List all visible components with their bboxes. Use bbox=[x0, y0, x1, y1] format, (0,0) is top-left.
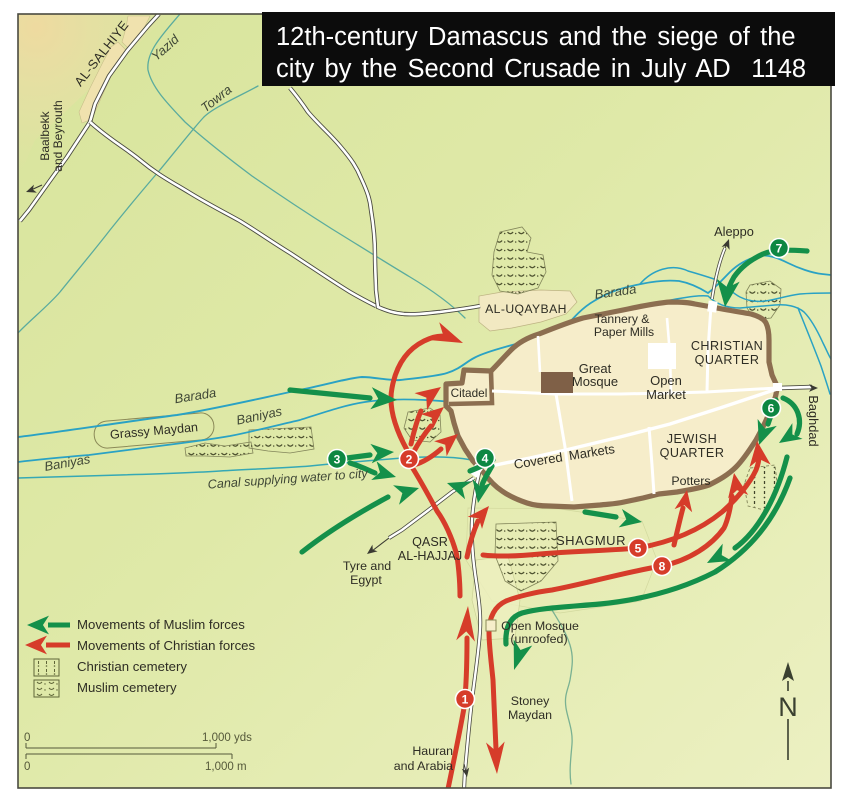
svg-text:SHAGMUR: SHAGMUR bbox=[556, 533, 626, 548]
svg-text:QUARTER: QUARTER bbox=[695, 353, 760, 367]
svg-text:0: 0 bbox=[24, 732, 30, 744]
svg-text:Stoney: Stoney bbox=[511, 694, 550, 708]
svg-text:12th-century Damascus and the: 12th-century Damascus and the siege of t… bbox=[276, 23, 796, 51]
svg-text:Hauran: Hauran bbox=[412, 744, 453, 758]
svg-text:QUARTER: QUARTER bbox=[660, 446, 725, 460]
svg-text:CHRISTIAN: CHRISTIAN bbox=[691, 339, 763, 353]
svg-text:and Arabia: and Arabia bbox=[394, 759, 453, 773]
svg-text:N: N bbox=[778, 692, 798, 722]
svg-text:7: 7 bbox=[776, 242, 783, 256]
svg-text:AL-HAJJAJ: AL-HAJJAJ bbox=[398, 549, 462, 563]
svg-text:and Beyrouth: and Beyrouth bbox=[51, 100, 65, 171]
svg-text:1,000 m: 1,000 m bbox=[205, 761, 247, 773]
svg-text:Tyre and: Tyre and bbox=[343, 559, 391, 573]
svg-text:0: 0 bbox=[24, 761, 30, 773]
svg-text:5: 5 bbox=[635, 542, 642, 556]
svg-text:Movements of Christian forces: Movements of Christian forces bbox=[77, 638, 256, 653]
svg-text:JEWISH: JEWISH bbox=[667, 432, 718, 446]
svg-text:6: 6 bbox=[768, 402, 775, 416]
svg-text:Potters: Potters bbox=[671, 474, 710, 488]
svg-text:(unroofed): (unroofed) bbox=[510, 632, 567, 646]
svg-text:Open: Open bbox=[650, 373, 682, 388]
svg-text:Maydan: Maydan bbox=[508, 708, 552, 722]
svg-text:Muslim cemetery: Muslim cemetery bbox=[77, 680, 177, 695]
svg-text:Movements of Muslim forces: Movements of Muslim forces bbox=[77, 617, 245, 632]
svg-text:4: 4 bbox=[482, 452, 489, 466]
svg-text:Baghdad: Baghdad bbox=[806, 395, 821, 446]
svg-text:Market: Market bbox=[646, 387, 686, 402]
svg-text:Open Mosque: Open Mosque bbox=[501, 619, 579, 633]
svg-text:city by the Second Crusade in: city by the Second Crusade in July AD 11… bbox=[276, 55, 806, 83]
svg-text:QASR: QASR bbox=[412, 535, 448, 549]
svg-text:Baalbekk: Baalbekk bbox=[38, 110, 52, 160]
svg-text:Citadel: Citadel bbox=[451, 386, 488, 400]
svg-text:Mosque: Mosque bbox=[572, 374, 618, 389]
svg-text:1,000 yds: 1,000 yds bbox=[202, 732, 252, 744]
svg-text:1: 1 bbox=[462, 693, 469, 707]
svg-text:3: 3 bbox=[334, 453, 341, 467]
svg-text:Aleppo: Aleppo bbox=[714, 224, 754, 239]
svg-text:Egypt: Egypt bbox=[350, 573, 382, 587]
svg-text:Paper Mills: Paper Mills bbox=[594, 325, 654, 339]
svg-text:Christian cemetery: Christian cemetery bbox=[77, 659, 187, 674]
svg-text:AL-UQAYBAH: AL-UQAYBAH bbox=[485, 302, 567, 316]
svg-text:Tannery &: Tannery & bbox=[595, 312, 650, 326]
svg-text:2: 2 bbox=[406, 453, 413, 467]
svg-text:8: 8 bbox=[659, 560, 666, 574]
